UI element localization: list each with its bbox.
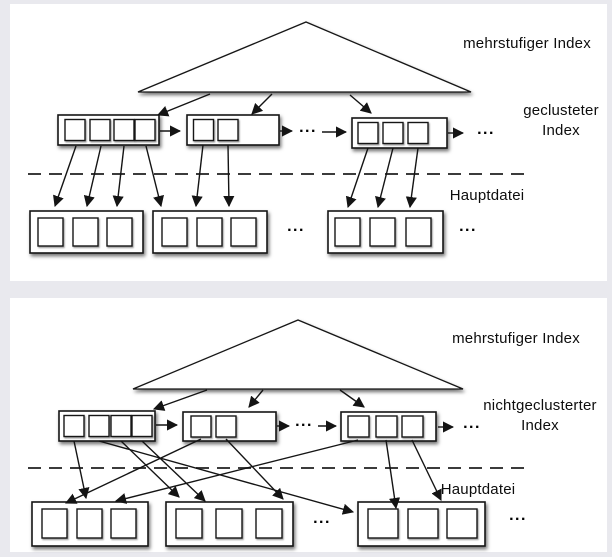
panel1-multilevel-index-label: mehrstufiger Index xyxy=(447,34,607,54)
panel1-index-mid-ellipsis: ... xyxy=(293,120,323,136)
panel1-data-block-3 xyxy=(328,211,443,253)
panel1-index-block-2 xyxy=(187,115,279,145)
panel2-data-block-3 xyxy=(358,502,485,546)
panel2-index-to-data-arrows xyxy=(66,439,441,512)
panel1-clustered-index-label: geclusteter Index xyxy=(501,101,612,141)
slide-page: mehrstufiger Index geclusteter Index Hau… xyxy=(0,0,612,557)
panel1-triangle-arrows xyxy=(158,94,371,115)
panel2-index-block-3 xyxy=(341,412,436,441)
panel2-data-block-2 xyxy=(166,502,293,546)
panel2-index-block-2 xyxy=(183,412,276,441)
panel2-index-end-ellipsis: ... xyxy=(457,416,487,432)
panel2-triangle-arrows xyxy=(154,390,364,409)
panel2-data-end-ellipsis: ... xyxy=(503,508,533,524)
panel1-index-end-ellipsis: ... xyxy=(471,122,501,138)
panel1-data-mid-ellipsis: ... xyxy=(281,219,311,235)
panel2-index-block-1 xyxy=(59,411,155,441)
panel2-index-mid-ellipsis: ... xyxy=(289,414,319,430)
panel1-index-triangle xyxy=(138,22,471,92)
panel1-data-end-ellipsis: ... xyxy=(453,219,483,235)
panel2-mainfile-label: Hauptdatei xyxy=(418,480,538,500)
panel1-index-to-data-arrows xyxy=(55,145,418,207)
panel1-data-block-2 xyxy=(153,211,267,253)
panel2-multilevel-index-label: mehrstufiger Index xyxy=(436,329,596,349)
panel2-nonclustered-index-label: nichtgeclusterter Index xyxy=(475,396,605,436)
panel2-data-mid-ellipsis: ... xyxy=(307,511,337,527)
panel1-data-block-1 xyxy=(30,211,143,253)
panel2-data-block-1 xyxy=(32,502,148,546)
panel1-index-block-3 xyxy=(352,118,447,148)
diagram-canvas xyxy=(0,0,612,557)
panel1-mainfile-label: Hauptdatei xyxy=(427,186,547,206)
panel2-index-triangle xyxy=(133,320,463,389)
panel1-index-block-1 xyxy=(58,115,159,145)
panel2-diagram xyxy=(28,320,530,546)
